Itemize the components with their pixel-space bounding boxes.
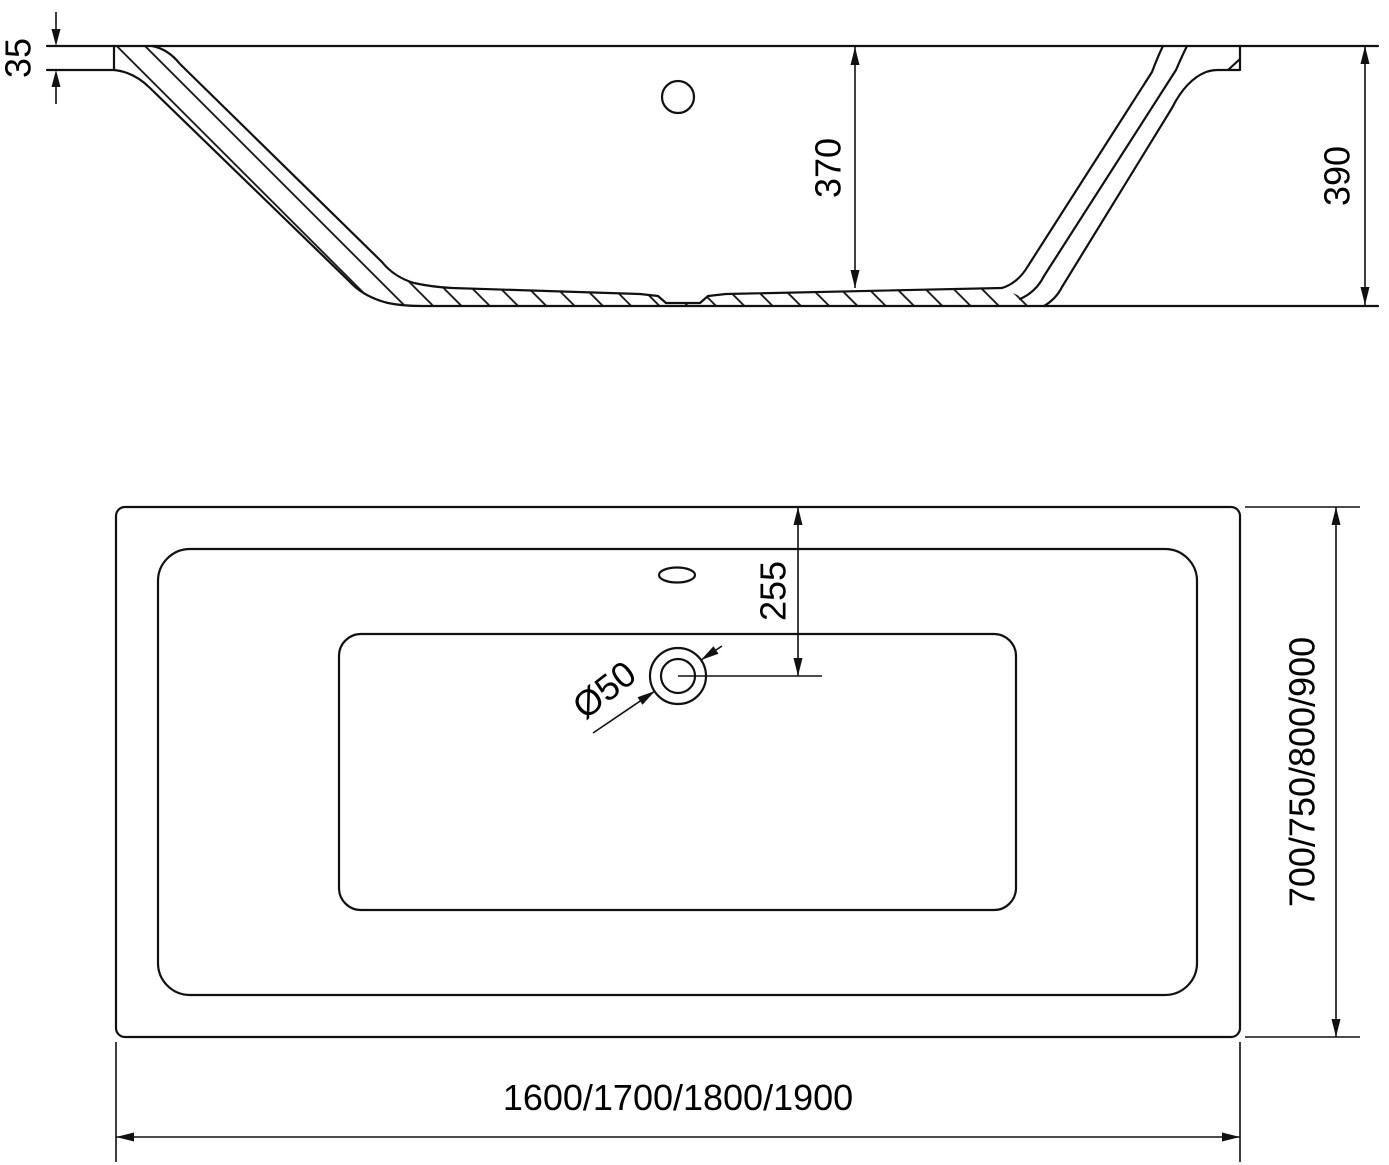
arrow-up-icon: [1332, 507, 1341, 525]
dim-width-label: 700/750/800/900: [1282, 637, 1323, 907]
right-wall-middle-line: [1020, 46, 1187, 299]
faucet-hole-icon: [659, 568, 695, 583]
right-wall-outer-line: [1044, 46, 1240, 306]
dim-rim-thickness: 35: [0, 12, 61, 104]
overflow-hole-icon: [662, 81, 694, 113]
dim-length-variants: 1600/1700/1800/1900: [116, 1042, 1240, 1162]
arrow-up-icon: [851, 47, 860, 65]
dim-overall-height: 390: [1317, 46, 1370, 305]
plan-view: 255 Ø50 700/750/800/900 1600/1700/1800/1…: [116, 507, 1360, 1162]
tub-rim-inner-edge: [158, 549, 1197, 995]
arrow-up-icon: [52, 70, 61, 87]
inner-wall-profile: [152, 46, 1163, 303]
dim-370-label: 370: [808, 138, 849, 198]
arrow-up-icon: [1361, 46, 1370, 64]
arrow-upright-icon: [638, 691, 656, 705]
dim-390-label: 390: [1317, 146, 1358, 206]
section-hatch-area: [114, 46, 1046, 306]
dim-drain-diameter: Ø50: [565, 646, 722, 733]
tub-floor-edge: [339, 634, 1016, 910]
arrow-down-icon: [1361, 287, 1370, 305]
bathtub-technical-drawing: 35 370 390 255: [0, 0, 1389, 1165]
dim-35-label: 35: [0, 38, 39, 78]
arrow-right-icon: [1222, 1133, 1240, 1142]
dim-255-label: 255: [753, 561, 794, 621]
dim-diameter-label: Ø50: [565, 653, 644, 727]
dim-inner-depth: 370: [808, 47, 860, 288]
arrow-downleft-icon: [701, 646, 719, 660]
arrow-up-icon: [794, 507, 803, 525]
tub-outer-edge: [116, 507, 1240, 1037]
arrow-down-icon: [851, 270, 860, 288]
arrow-down-icon: [52, 29, 61, 46]
section-view: 35 370 390: [0, 12, 1378, 306]
dim-drain-offset: 255: [753, 507, 803, 676]
dim-width-variants: 700/750/800/900: [1245, 507, 1360, 1037]
arrow-left-icon: [116, 1133, 134, 1142]
dim-length-label: 1600/1700/1800/1900: [503, 1077, 853, 1118]
technical-drawing-page: 35 370 390 255: [0, 0, 1389, 1165]
arrow-down-icon: [1332, 1019, 1341, 1037]
arrow-down-icon: [794, 658, 803, 676]
